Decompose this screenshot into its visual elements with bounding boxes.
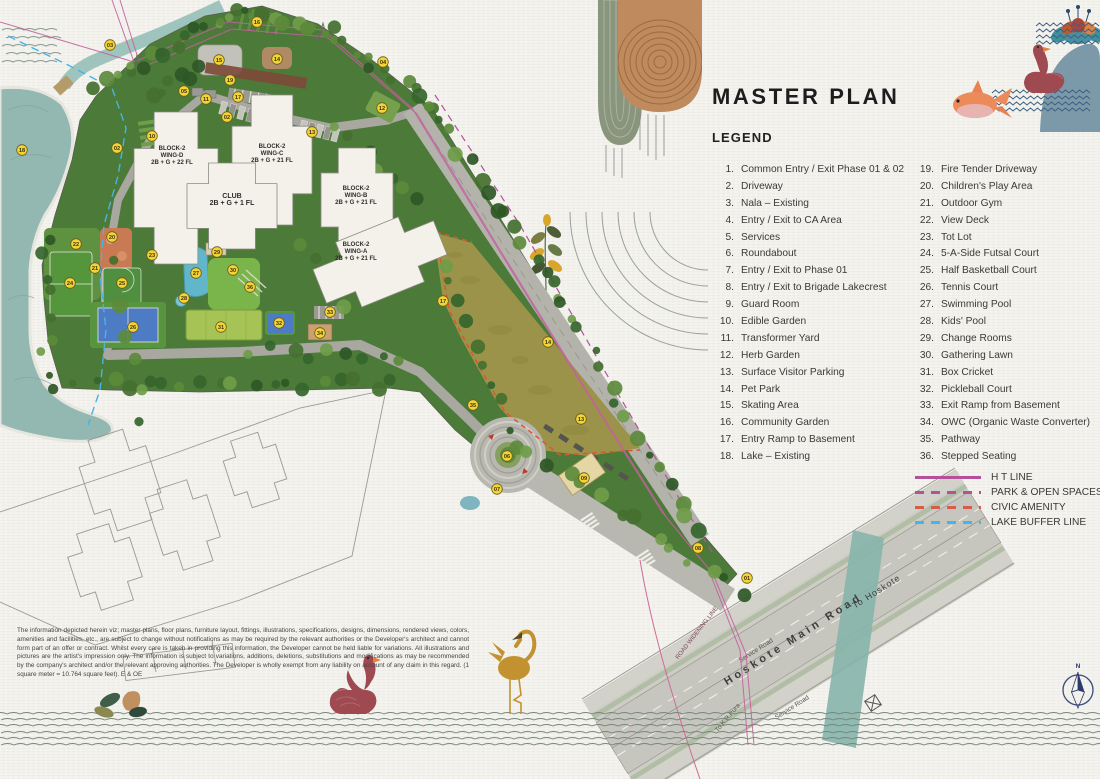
plan-marker: 02 (222, 112, 233, 123)
svg-text:27: 27 (193, 271, 199, 277)
plan-marker: 21 (90, 263, 101, 274)
legend-col-2: 19.Fire Tender Driveway20.Children's Pla… (912, 161, 1090, 465)
plan-marker: 34 (315, 328, 326, 339)
legend-line-swatch (915, 491, 981, 494)
svg-text:24: 24 (67, 281, 74, 287)
legend-item: 24.5-A-Side Futsal Court (912, 245, 1090, 262)
legend-item: 21.Outdoor Gym (912, 195, 1090, 212)
svg-text:25: 25 (119, 281, 125, 287)
plan-marker: 14 (543, 337, 554, 348)
svg-text:33: 33 (327, 310, 333, 316)
plan-marker: 03 (105, 40, 116, 51)
plan-marker: 32 (274, 318, 285, 329)
compass-n-label: N (1076, 663, 1081, 670)
svg-text:03: 03 (107, 43, 113, 49)
legend-item: 3.Nala – Existing (712, 195, 904, 212)
legend-item: 5.Services (712, 229, 904, 246)
legend-item: 4.Entry / Exit to CA Area (712, 212, 904, 229)
plan-marker: 28 (179, 293, 190, 304)
legend-item: 35.Pathway (912, 431, 1090, 448)
page-title: MASTER PLAN (712, 84, 1094, 110)
plan-marker: 11 (201, 94, 212, 105)
svg-text:10: 10 (149, 134, 155, 140)
svg-text:20: 20 (109, 235, 115, 241)
legend-item: 2.Driveway (712, 178, 904, 195)
corridor-pond (460, 496, 480, 510)
plan-marker: 35 (468, 400, 479, 411)
plan-marker: 16 (252, 17, 263, 28)
plan-marker: 22 (71, 239, 82, 250)
legend-item: 16.Community Garden (712, 414, 904, 431)
plan-marker: 08 (693, 543, 704, 554)
plan-marker: 36 (245, 282, 256, 293)
svg-text:13: 13 (578, 417, 584, 423)
svg-text:15: 15 (216, 58, 222, 64)
plan-marker: 20 (107, 232, 118, 243)
plan-marker: 17 (233, 92, 244, 103)
legend-line-item: CIVIC AMENITY (915, 500, 1100, 515)
legend-items: 1.Common Entry / Exit Phase 01 & 022.Dri… (712, 161, 1094, 469)
master-plan-page: Hoskote Main Road To Hoskote Service Roa… (0, 0, 1100, 779)
svg-text:28: 28 (181, 296, 187, 302)
plan-marker: 06 (502, 451, 513, 462)
svg-text:26: 26 (130, 325, 136, 331)
svg-text:19: 19 (227, 78, 233, 84)
svg-text:34: 34 (317, 331, 324, 337)
disclaimer-text: The information depicted herein viz; mas… (17, 627, 469, 680)
plan-marker: 25 (117, 278, 128, 289)
legend-item: 23.Tot Lot (912, 229, 1090, 246)
legend-item: 28.Kids' Pool (912, 313, 1090, 330)
svg-text:22: 22 (73, 242, 79, 248)
svg-text:08: 08 (695, 546, 701, 552)
plan-marker: 26 (128, 322, 139, 333)
svg-text:02: 02 (114, 146, 120, 152)
svg-text:13: 13 (309, 130, 315, 136)
legend-item: 18.Lake – Existing (712, 448, 904, 465)
svg-text:30: 30 (230, 268, 236, 274)
svg-text:11: 11 (203, 97, 209, 103)
legend-item: 7.Entry / Exit to Phase 01 (712, 262, 904, 279)
legend-item: 10.Edible Garden (712, 313, 904, 330)
leaves-decoration (93, 690, 148, 720)
legend-item: 12.Herb Garden (712, 347, 904, 364)
plan-marker: 02 (112, 143, 123, 154)
plan-marker: 01 (742, 573, 753, 584)
svg-text:17: 17 (235, 95, 241, 101)
legend-item: 34.OWC (Organic Waste Converter) (912, 414, 1090, 431)
legend-line-types: H T LINEPARK & OPEN SPACESCIVIC AMENITYL… (915, 470, 1100, 530)
plan-marker: 12 (377, 103, 388, 114)
legend-item: 31.Box Cricket (912, 364, 1090, 381)
zen-garden-decoration (598, 0, 702, 178)
plan-marker: 13 (307, 127, 318, 138)
culvert-icon (865, 695, 882, 712)
legend-item: 20.Children's Play Area (912, 178, 1090, 195)
compass-icon: N (1063, 663, 1093, 708)
plan-marker: 07 (492, 484, 503, 495)
plan-marker: 15 (214, 55, 225, 66)
legend-item: 6.Roundabout (712, 245, 904, 262)
legend-item: 30.Gathering Lawn (912, 347, 1090, 364)
plan-marker: 10 (147, 131, 158, 142)
svg-text:06: 06 (504, 454, 510, 460)
legend-panel: MASTER PLAN LEGEND 1.Common Entry / Exit… (712, 84, 1094, 469)
svg-text:04: 04 (380, 60, 387, 66)
svg-text:16: 16 (254, 20, 260, 26)
legend-item: 22.View Deck (912, 212, 1090, 229)
legend-line-item: LAKE BUFFER LINE (915, 515, 1100, 530)
svg-text:31: 31 (218, 325, 224, 331)
svg-text:17: 17 (440, 299, 446, 305)
legend-item: 9.Guard Room (712, 296, 904, 313)
plan-marker: 30 (228, 265, 239, 276)
water-waves-band (0, 713, 1100, 746)
svg-text:12: 12 (379, 106, 385, 112)
plan-marker: 18 (17, 145, 28, 156)
legend-item: 17.Entry Ramp to Basement (712, 431, 904, 448)
svg-text:07: 07 (494, 487, 500, 493)
plan-marker: 05 (179, 86, 190, 97)
legend-line-swatch (915, 506, 981, 509)
legend-item: 8.Entry / Exit to Brigade Lakecrest (712, 279, 904, 296)
svg-text:21: 21 (92, 266, 98, 272)
plan-marker: 13 (576, 414, 587, 425)
svg-text:01: 01 (744, 576, 750, 582)
legend-item: 25.Half Basketball Court (912, 262, 1090, 279)
legend-item: 15.Skating Area (712, 397, 904, 414)
svg-text:35: 35 (470, 403, 476, 409)
legend-line-swatch (915, 521, 981, 524)
svg-text:23: 23 (149, 253, 155, 259)
plan-marker: 09 (579, 473, 590, 484)
legend-item: 36.Stepped Seating (912, 448, 1090, 465)
plan-marker: 17 (438, 296, 449, 307)
plan-marker: 19 (225, 75, 236, 86)
svg-text:14: 14 (274, 57, 281, 63)
legend-line-swatch (915, 476, 981, 479)
plan-marker: 23 (147, 250, 158, 261)
svg-text:14: 14 (545, 340, 552, 346)
legend-line-item: H T LINE (915, 470, 1100, 485)
plan-marker: 14 (272, 54, 283, 65)
legend-item: 32.Pickleball Court (912, 381, 1090, 398)
legend-item: 14.Pet Park (712, 381, 904, 398)
legend-item: 11.Transformer Yard (712, 330, 904, 347)
svg-text:02: 02 (224, 115, 230, 121)
plan-marker: 24 (65, 278, 76, 289)
legend-item: 27.Swimming Pool (912, 296, 1090, 313)
legend-item: 13.Surface Visitor Parking (712, 364, 904, 381)
legend-item: 29.Change Rooms (912, 330, 1090, 347)
legend-item: 1.Common Entry / Exit Phase 01 & 02 (712, 161, 904, 178)
plan-marker: 04 (378, 57, 389, 68)
plan-marker: 33 (325, 307, 336, 318)
flamingo-icon (488, 632, 534, 714)
svg-text:09: 09 (581, 476, 587, 482)
plan-marker: 27 (191, 268, 202, 279)
legend-item: 33.Exit Ramp from Basement (912, 397, 1090, 414)
water-waves-decoration (2, 29, 61, 63)
svg-text:32: 32 (276, 321, 282, 327)
legend-heading: LEGEND (712, 130, 1094, 145)
svg-text:29: 29 (214, 250, 220, 256)
svg-text:05: 05 (181, 89, 187, 95)
legend-item: 26.Tennis Court (912, 279, 1090, 296)
svg-text:18: 18 (19, 148, 25, 154)
legend-item: 19.Fire Tender Driveway (912, 161, 1090, 178)
plan-marker: 29 (212, 247, 223, 258)
svg-text:36: 36 (247, 285, 253, 291)
plan-marker: 31 (216, 322, 227, 333)
ripple-arcs-decoration (570, 212, 708, 350)
legend-col-1: 1.Common Entry / Exit Phase 01 & 022.Dri… (712, 161, 904, 465)
legend-line-item: PARK & OPEN SPACES (915, 485, 1100, 500)
